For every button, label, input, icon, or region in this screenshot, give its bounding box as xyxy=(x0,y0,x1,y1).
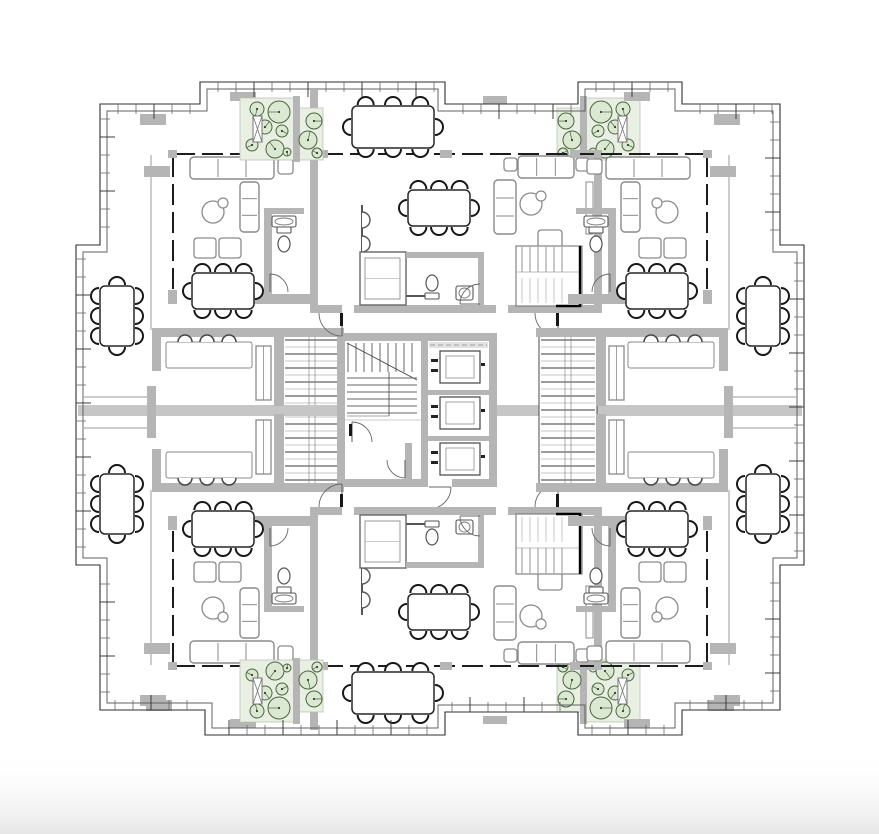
elevator-door xyxy=(431,461,438,464)
table-top xyxy=(352,672,434,714)
midroom-wall xyxy=(719,337,728,371)
chair-icon xyxy=(343,685,351,701)
coffee-table xyxy=(218,198,228,208)
facade-pier xyxy=(714,695,740,706)
elevator-door xyxy=(431,451,438,454)
unit-wall xyxy=(168,290,177,304)
chair-icon xyxy=(399,200,407,216)
chair-icon xyxy=(215,502,231,510)
floor-plan-canvas xyxy=(0,0,879,834)
sofa xyxy=(606,641,690,663)
seat-scallops xyxy=(200,335,214,342)
mullion-pier xyxy=(440,150,452,158)
toilet xyxy=(277,587,291,593)
coffee-table xyxy=(536,191,546,201)
toilet xyxy=(589,227,603,233)
chair-icon xyxy=(670,310,686,318)
planter-divider-wall xyxy=(293,658,300,724)
bath-wall xyxy=(576,208,616,214)
chair-icon xyxy=(649,548,665,556)
armchair xyxy=(194,238,216,258)
mullion-pier xyxy=(440,662,452,670)
armchair xyxy=(639,238,661,258)
seat-scallops xyxy=(666,335,680,342)
chair-icon xyxy=(435,119,443,135)
chair-icon xyxy=(755,347,771,355)
chair-icon xyxy=(410,227,426,235)
chair-icon xyxy=(431,585,447,593)
chair-icon xyxy=(410,585,426,593)
chair-icon xyxy=(737,328,745,344)
chair-icon xyxy=(109,535,125,543)
unit-wall xyxy=(354,507,496,515)
chair-icon xyxy=(670,502,686,510)
unit-wall xyxy=(703,290,712,304)
armchair xyxy=(194,562,216,582)
facade-pier xyxy=(483,716,507,724)
table-top xyxy=(352,106,434,148)
chair-icon xyxy=(412,663,428,671)
toilet xyxy=(425,293,439,299)
sofa xyxy=(606,157,690,179)
midroom-wall xyxy=(274,414,284,490)
chair-icon xyxy=(628,310,644,318)
elevator-door xyxy=(431,369,438,372)
chair-icon xyxy=(358,97,374,105)
armchair xyxy=(219,562,241,582)
chair-icon xyxy=(135,476,143,492)
chair-icon xyxy=(410,181,426,189)
table-top xyxy=(100,286,134,346)
chair-icon xyxy=(689,521,697,537)
chair-icon xyxy=(781,288,789,304)
core-wall xyxy=(337,479,427,487)
bath-wall xyxy=(478,252,484,308)
toilet xyxy=(278,568,290,584)
chair-icon xyxy=(385,97,401,105)
chaise xyxy=(621,588,640,638)
table-top xyxy=(746,474,780,534)
chair-icon xyxy=(670,548,686,556)
chaise xyxy=(494,180,516,234)
facade-pier xyxy=(144,166,170,177)
chair-icon xyxy=(91,516,99,532)
bath-wall xyxy=(264,524,272,612)
chair-icon xyxy=(781,476,789,492)
sofa xyxy=(518,156,574,178)
chair-icon xyxy=(91,308,99,324)
planter-divider-wall xyxy=(293,96,300,162)
table-top xyxy=(626,273,688,309)
chair-icon xyxy=(628,502,644,510)
chair-icon xyxy=(385,663,401,671)
seat-scallops xyxy=(200,478,214,485)
chair-icon xyxy=(737,476,745,492)
chair-icon xyxy=(236,548,252,556)
coffee-table xyxy=(652,612,662,622)
midroom-wall xyxy=(152,337,161,371)
chair-icon xyxy=(236,264,252,272)
bath-wall xyxy=(406,252,484,258)
sofa xyxy=(518,642,574,664)
side-table xyxy=(504,158,517,171)
chair-icon xyxy=(215,548,231,556)
chair-icon xyxy=(194,502,210,510)
chair-icon xyxy=(649,264,665,272)
chair-icon xyxy=(617,283,625,299)
chair-icon xyxy=(737,288,745,304)
unit-wall xyxy=(310,507,342,515)
chaise xyxy=(240,182,259,232)
chair-icon xyxy=(215,264,231,272)
table-top xyxy=(746,286,780,346)
chair-icon xyxy=(649,502,665,510)
daybed xyxy=(166,342,252,368)
counterweight xyxy=(481,409,485,412)
chair-icon xyxy=(385,149,401,157)
facade-pier xyxy=(140,695,166,706)
unit-wall xyxy=(354,305,496,313)
chair-icon xyxy=(628,264,644,272)
bath-wall xyxy=(406,562,484,568)
chair-icon xyxy=(183,521,191,537)
toilet xyxy=(426,529,438,545)
table-top xyxy=(100,474,134,534)
chair-icon xyxy=(452,631,468,639)
chair-icon xyxy=(135,516,143,532)
bath-wall xyxy=(264,208,304,214)
table-top xyxy=(626,511,688,547)
mullion-pier xyxy=(168,150,177,158)
chair-icon xyxy=(412,715,428,723)
counterweight xyxy=(481,363,485,366)
midroom-wall xyxy=(152,449,161,483)
armchair xyxy=(219,238,241,258)
core-wall xyxy=(337,333,345,487)
chair-icon xyxy=(452,585,468,593)
table-top xyxy=(192,511,254,547)
chair-icon xyxy=(255,521,263,537)
chair-icon xyxy=(617,521,625,537)
chair-icon xyxy=(215,310,231,318)
core-wall xyxy=(405,443,412,487)
chair-icon xyxy=(670,264,686,272)
chair-icon xyxy=(358,149,374,157)
toilet xyxy=(278,236,290,252)
seat-scallops xyxy=(178,478,192,485)
chair-icon xyxy=(471,200,479,216)
chair-icon xyxy=(431,181,447,189)
chaise xyxy=(621,182,640,232)
chair-icon xyxy=(91,496,99,512)
toilet xyxy=(589,587,603,593)
chair-icon xyxy=(755,535,771,543)
armchair xyxy=(639,562,661,582)
chair-icon xyxy=(109,277,125,285)
mullion-pier xyxy=(168,662,177,670)
chair-icon xyxy=(755,277,771,285)
armchair xyxy=(664,238,686,258)
seat-scallops xyxy=(644,335,658,342)
chair-icon xyxy=(399,604,407,620)
chair-icon xyxy=(135,328,143,344)
page-fade xyxy=(0,752,879,834)
door-leaf xyxy=(556,494,559,507)
chair-icon xyxy=(755,465,771,473)
bath-wall xyxy=(608,208,616,296)
expansion-band xyxy=(78,405,341,416)
core-wall xyxy=(489,333,497,487)
chair-icon xyxy=(689,283,697,299)
coffee-table xyxy=(218,612,228,622)
daybed xyxy=(628,342,714,368)
core-wall xyxy=(337,333,497,341)
seat-scallops xyxy=(688,478,702,485)
chair-icon xyxy=(737,308,745,324)
chair-icon xyxy=(343,119,351,135)
floor-plan-svg xyxy=(0,0,879,834)
elevator-bank xyxy=(428,436,489,441)
chair-icon xyxy=(183,283,191,299)
door-leaf xyxy=(349,424,352,436)
facade-pier xyxy=(624,92,650,101)
unit-wall xyxy=(168,516,177,530)
chair-icon xyxy=(628,548,644,556)
chair-icon xyxy=(781,516,789,532)
core-wall xyxy=(452,479,497,487)
facade-pier xyxy=(483,96,507,104)
daybed xyxy=(628,452,714,478)
table-top xyxy=(192,273,254,309)
chair-icon xyxy=(649,310,665,318)
mullion-pier xyxy=(570,662,580,670)
chair-icon xyxy=(412,97,428,105)
chaise xyxy=(240,588,259,638)
toilet xyxy=(590,568,602,584)
chair-icon xyxy=(109,347,125,355)
midroom-wall xyxy=(596,330,606,406)
chair-icon xyxy=(435,685,443,701)
chair-icon xyxy=(452,227,468,235)
chair-icon xyxy=(781,308,789,324)
chair-icon xyxy=(91,328,99,344)
chair-icon xyxy=(737,516,745,532)
mullion-pier xyxy=(703,662,712,670)
counterweight xyxy=(481,455,485,458)
chair-icon xyxy=(109,465,125,473)
chair-icon xyxy=(135,288,143,304)
door-leaf xyxy=(340,313,343,326)
side-table xyxy=(504,649,517,662)
facade-pier xyxy=(140,114,166,125)
door-leaf xyxy=(340,494,343,507)
chair-icon xyxy=(194,548,210,556)
bath-wall xyxy=(576,606,616,612)
core-wall xyxy=(421,341,428,487)
seat-scallops xyxy=(688,335,702,342)
chair-icon xyxy=(236,502,252,510)
chair-icon xyxy=(91,288,99,304)
bath-wall xyxy=(264,606,304,612)
table-top xyxy=(408,594,470,630)
chair-icon xyxy=(385,715,401,723)
bath-wall xyxy=(608,524,616,612)
chair-icon xyxy=(410,631,426,639)
table-top xyxy=(408,190,470,226)
chair-icon xyxy=(236,310,252,318)
chair-icon xyxy=(781,496,789,512)
midroom-wall xyxy=(596,414,606,490)
terrace-pier xyxy=(724,386,733,438)
seat-scallops xyxy=(644,478,658,485)
seat-scallops xyxy=(178,335,192,342)
chair-icon xyxy=(194,310,210,318)
chair-icon xyxy=(781,328,789,344)
chair-icon xyxy=(452,181,468,189)
chair-icon xyxy=(135,308,143,324)
toilet xyxy=(590,236,602,252)
chair-icon xyxy=(431,631,447,639)
chair-icon xyxy=(431,227,447,235)
chair-icon xyxy=(255,283,263,299)
chaise xyxy=(494,586,516,640)
armchair xyxy=(664,562,686,582)
seat-scallops xyxy=(666,478,680,485)
facade-pier xyxy=(710,166,736,177)
chair-icon xyxy=(737,496,745,512)
midroom-wall xyxy=(719,449,728,483)
seat-scallops xyxy=(222,478,236,485)
side-table xyxy=(587,159,602,174)
bath-wall xyxy=(478,512,484,568)
toilet xyxy=(425,521,439,527)
side-table xyxy=(278,159,293,174)
side-table xyxy=(587,646,602,661)
mullion-pier xyxy=(570,150,580,158)
toilet xyxy=(426,275,438,291)
door-leaf xyxy=(556,313,559,326)
chair-icon xyxy=(412,149,428,157)
chair-icon xyxy=(358,715,374,723)
elevator-door xyxy=(431,359,438,362)
chair-icon xyxy=(194,264,210,272)
chair-icon xyxy=(358,663,374,671)
facade-pier xyxy=(710,643,736,654)
elevator-bank xyxy=(428,390,489,395)
chair-icon xyxy=(91,476,99,492)
mullion-pier xyxy=(703,150,712,158)
elevator-door xyxy=(431,415,438,418)
seat-scallops xyxy=(222,335,236,342)
bath-wall xyxy=(264,208,272,296)
toilet xyxy=(277,227,291,233)
chair-icon xyxy=(135,496,143,512)
chair-icon xyxy=(471,604,479,620)
terrace-pier xyxy=(147,386,156,438)
side-table xyxy=(278,646,293,661)
facade-pier xyxy=(144,643,170,654)
midroom-wall xyxy=(274,330,284,406)
coffee-table xyxy=(652,198,662,208)
unit-wall xyxy=(310,305,342,313)
unit-wall xyxy=(703,516,712,530)
daybed xyxy=(166,452,252,478)
coffee-table xyxy=(536,619,546,629)
elevator-door xyxy=(431,405,438,408)
